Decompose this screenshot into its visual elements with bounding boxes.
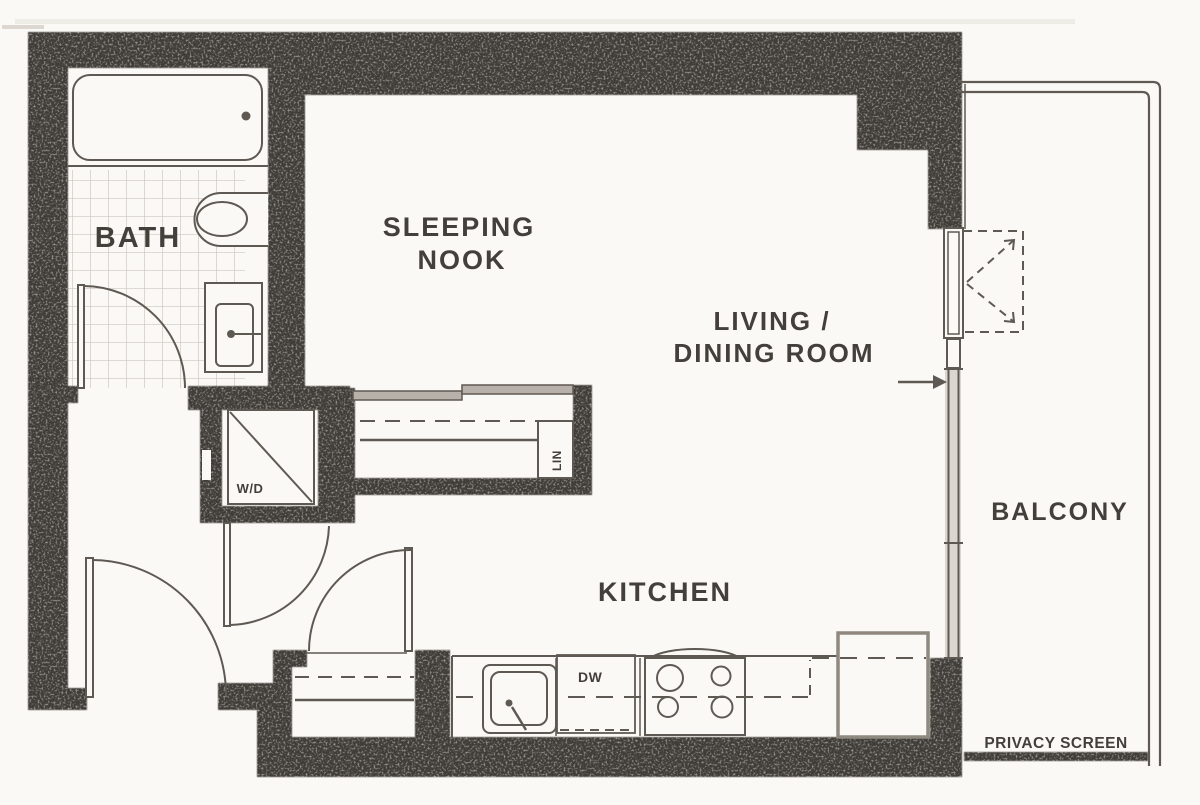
- wall-right-lower: [930, 658, 962, 775]
- laundry-door-leaf: [224, 523, 230, 626]
- label-washer-dryer: W/D: [237, 481, 264, 496]
- wall-coat-closet-right: [415, 650, 450, 743]
- coat-closet-door-leaf: [405, 548, 412, 651]
- bathtub-drain: [242, 112, 251, 121]
- kitchen-faucet-base: [506, 700, 513, 707]
- toilet-bowl: [197, 202, 247, 236]
- label-linen: LIN: [550, 450, 564, 471]
- wall-left-foot: [28, 688, 87, 710]
- room-label-living-line1: LIVING /: [713, 306, 830, 336]
- room-label-sleeping-nook-line1: SLEEPING: [383, 212, 536, 242]
- vanity-drain: [227, 330, 235, 338]
- wall-bath-right: [268, 68, 305, 392]
- room-label-balcony: BALCONY: [991, 498, 1129, 526]
- bath-door-leaf: [78, 285, 84, 388]
- label-privacy-screen: PRIVACY SCREEN: [984, 735, 1127, 752]
- privacy-screen-line: [964, 752, 1148, 761]
- scan-artifact-speck: [2, 25, 44, 29]
- wall-right-upper: [928, 150, 962, 229]
- wall-wardrobe-bottom: [330, 478, 592, 495]
- room-label-kitchen: KITCHEN: [598, 577, 732, 607]
- floor-plan-drawing: BATH SLEEPING NOOK LIVING / DINING ROOM …: [0, 0, 1200, 805]
- wall-top-right-block: [857, 32, 962, 150]
- entry-door-leaf: [86, 558, 93, 697]
- wardrobe-front-left: [353, 391, 462, 400]
- laundry-door-jamb: [202, 450, 211, 480]
- wall-wardrobe-right: [573, 385, 592, 493]
- wall-top-main: [268, 32, 857, 95]
- scan-artifact-streak: [15, 19, 1075, 24]
- room-label-bath: BATH: [95, 222, 181, 254]
- wardrobe-front-right: [462, 385, 573, 394]
- wall-laundry-bottom: [200, 506, 350, 523]
- room-label-living-line2: DINING ROOM: [673, 338, 874, 368]
- wall-laundry-right: [318, 388, 355, 523]
- label-dishwasher: DW: [578, 669, 603, 685]
- room-label-sleeping-nook-line2: NOOK: [418, 245, 507, 275]
- wall-bath-door-nib: [64, 386, 78, 403]
- wall-bottom: [273, 737, 962, 777]
- wall-left: [28, 32, 68, 688]
- floor-plan-sheet: BATH SLEEPING NOOK LIVING / DINING ROOM …: [0, 0, 1200, 805]
- balcony-door-panel: [944, 228, 963, 338]
